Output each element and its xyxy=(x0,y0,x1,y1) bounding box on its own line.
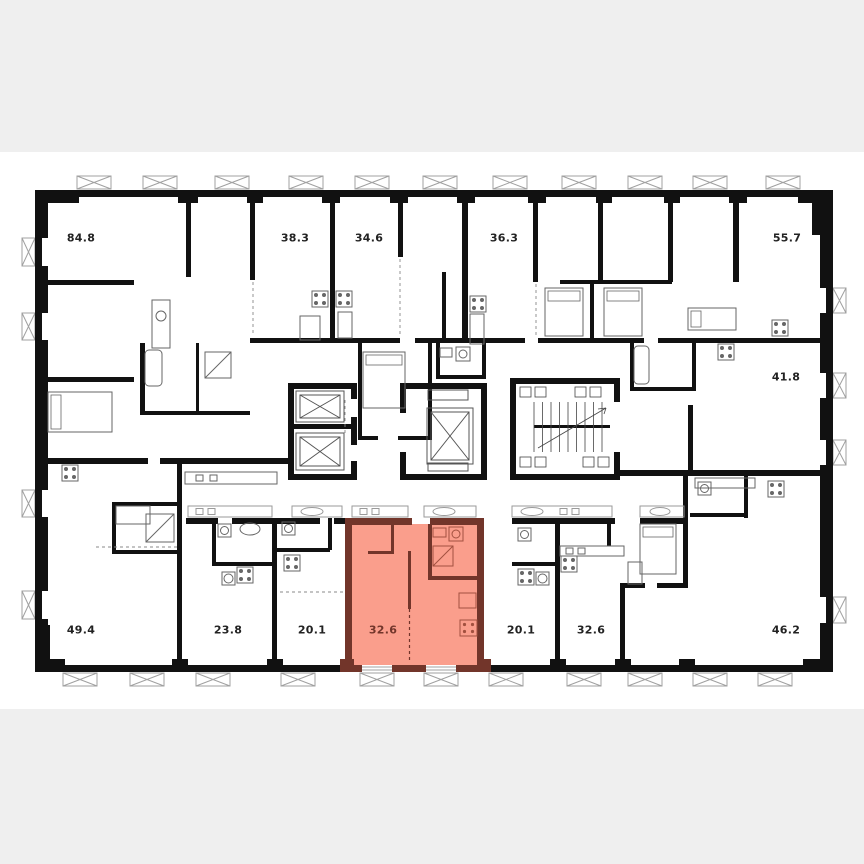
floor-plan-image[interactable]: 84.838.334.636.355.741.849.423.820.132.6… xyxy=(0,0,864,864)
highlighted-apartment[interactable] xyxy=(345,518,484,672)
elevator-shaft-icon xyxy=(296,390,473,471)
floor-plan-svg xyxy=(0,0,864,864)
core-layer xyxy=(288,378,620,480)
